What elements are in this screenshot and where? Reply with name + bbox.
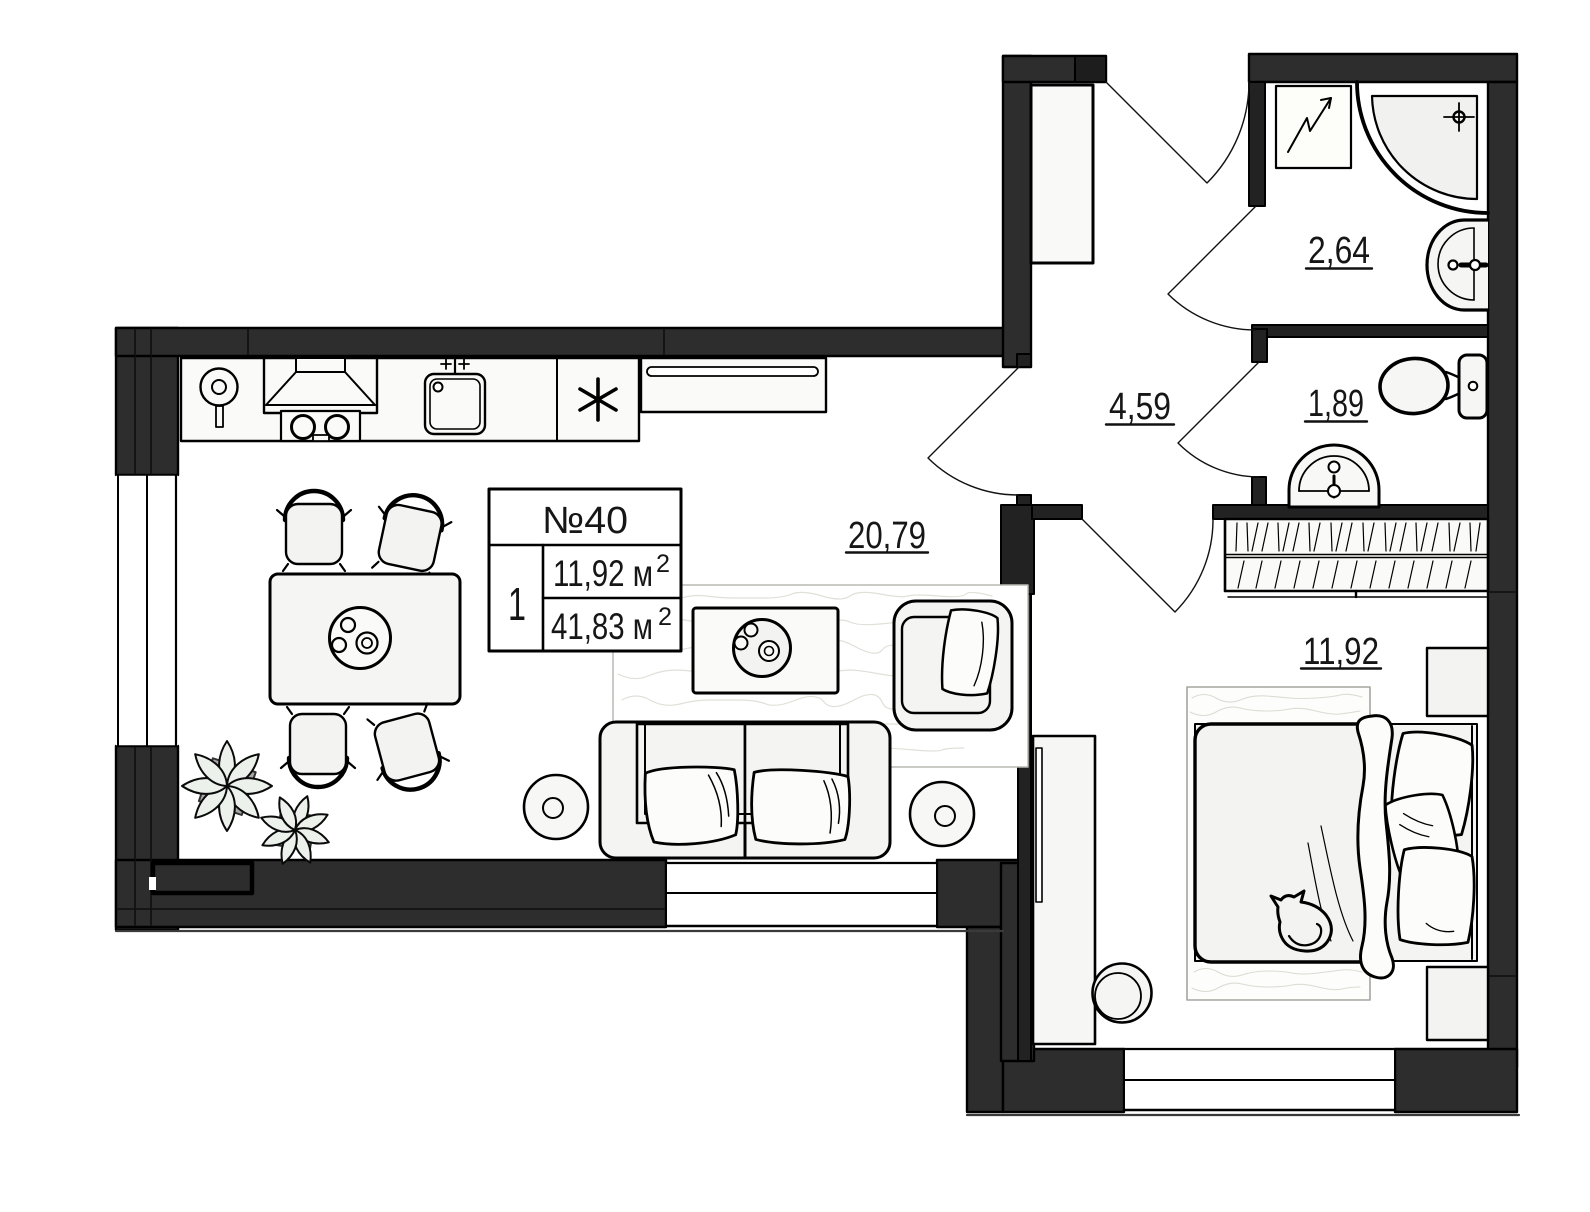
- svg-text:20,79: 20,79: [848, 515, 926, 557]
- svg-text:2: 2: [656, 550, 670, 578]
- svg-text:2,64: 2,64: [1308, 230, 1370, 272]
- svg-text:1,89: 1,89: [1308, 383, 1364, 425]
- svg-text:2: 2: [658, 603, 672, 631]
- svg-text:11,92 м: 11,92 м: [553, 553, 653, 594]
- svg-text:№40: №40: [542, 500, 628, 542]
- svg-text:41,83 м: 41,83 м: [551, 606, 653, 647]
- svg-text:11,92: 11,92: [1303, 631, 1379, 673]
- svg-text:1: 1: [508, 578, 526, 630]
- svg-text:4,59: 4,59: [1109, 386, 1171, 428]
